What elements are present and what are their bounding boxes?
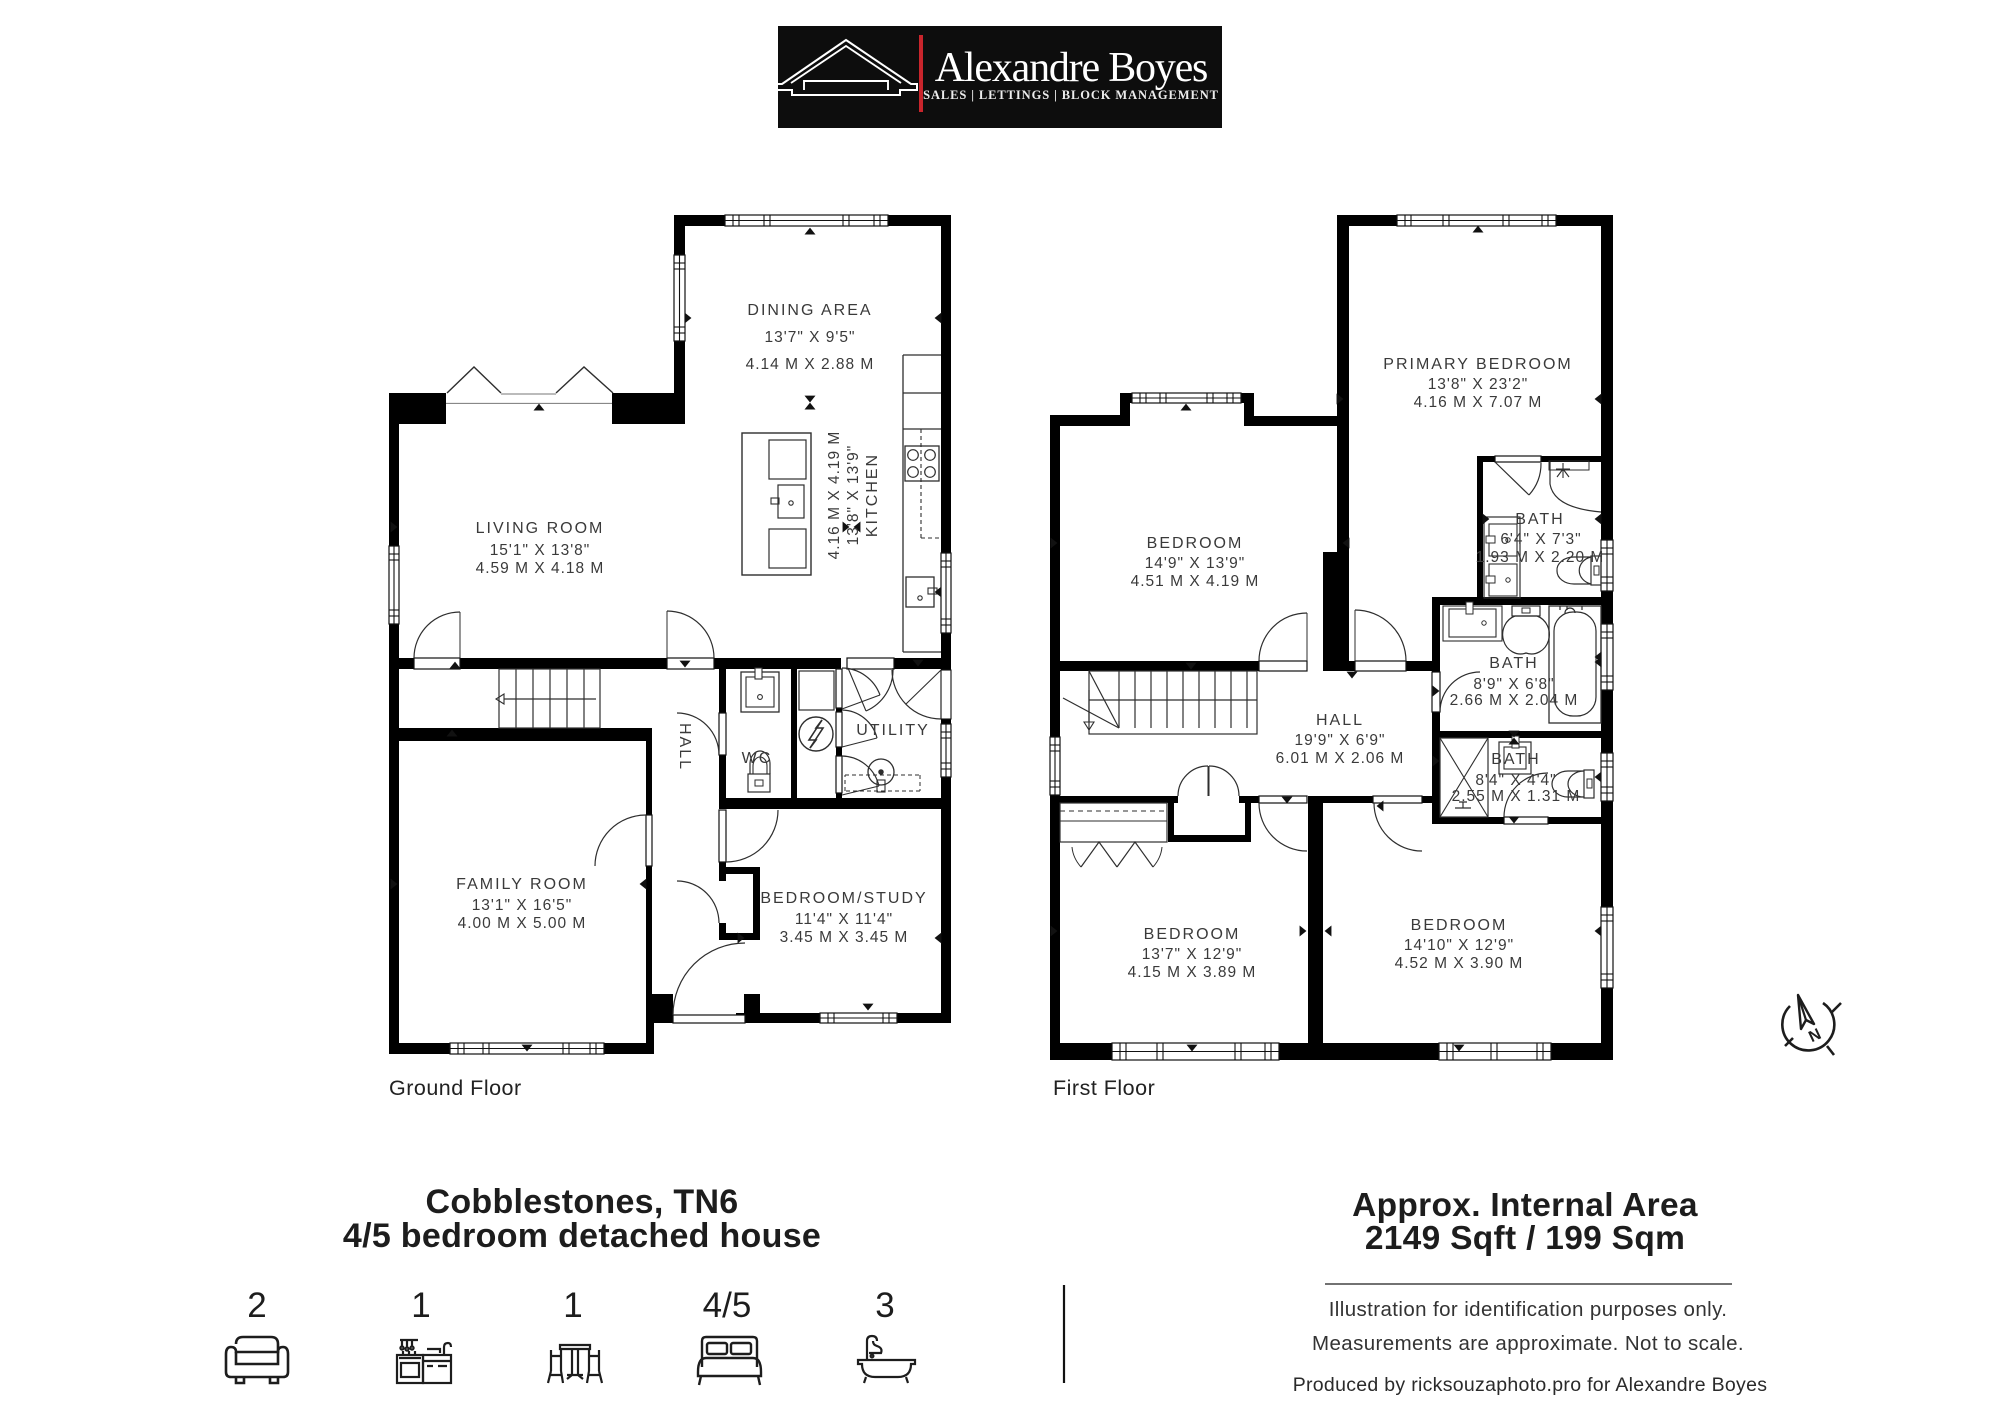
svg-text:8'9" X 6'8": 8'9" X 6'8" [1473, 676, 1554, 693]
svg-text:BEDROOM: BEDROOM [1144, 926, 1241, 943]
svg-text:1.93 M X 2.20 M: 1.93 M X 2.20 M [1476, 549, 1605, 566]
svg-text:First Floor: First Floor [1053, 1076, 1155, 1100]
svg-text:WC: WC [742, 750, 773, 767]
svg-text:3.45 M X 3.45 M: 3.45 M X 3.45 M [780, 929, 909, 946]
svg-text:19'9" X 6'9": 19'9" X 6'9" [1295, 732, 1386, 749]
svg-text:4.16 M X 4.19 M: 4.16 M X 4.19 M [826, 431, 843, 560]
svg-text:4.14 M X 2.88 M: 4.14 M X 2.88 M [746, 356, 875, 373]
svg-text:BEDROOM: BEDROOM [1147, 535, 1244, 552]
svg-text:2.55 M X 1.31 M: 2.55 M X 1.31 M [1452, 788, 1581, 805]
svg-text:13'1" X 16'5": 13'1" X 16'5" [472, 897, 573, 914]
svg-text:BATH: BATH [1489, 655, 1538, 672]
svg-text:6.01 M X 2.06 M: 6.01 M X 2.06 M [1276, 750, 1405, 767]
svg-text:PRIMARY BEDROOM: PRIMARY BEDROOM [1383, 356, 1572, 373]
svg-text:15'1" X 13'8": 15'1" X 13'8" [490, 542, 591, 559]
svg-text:Measurements are approximate.: Measurements are approximate. Not to sca… [1312, 1332, 1744, 1355]
svg-text:FAMILY ROOM: FAMILY ROOM [456, 876, 588, 893]
svg-text:HALL: HALL [676, 723, 693, 771]
svg-text:13'8" X 23'2": 13'8" X 23'2" [1428, 376, 1529, 393]
svg-text:14'10" X 12'9": 14'10" X 12'9" [1404, 937, 1514, 954]
svg-text:Cobblestones, TN6: Cobblestones, TN6 [425, 1183, 738, 1221]
svg-text:4/5: 4/5 [703, 1286, 752, 1325]
svg-text:13'8" X 13'9": 13'8" X 13'9" [845, 445, 862, 546]
svg-text:4/5 bedroom detached house: 4/5 bedroom detached house [343, 1217, 821, 1255]
svg-text:13'7" X 9'5": 13'7" X 9'5" [765, 329, 856, 346]
svg-text:4.00 M X 5.00 M: 4.00 M X 5.00 M [458, 915, 587, 932]
svg-text:BATH: BATH [1491, 751, 1540, 768]
svg-text:4.52 M X 3.90 M: 4.52 M X 3.90 M [1395, 955, 1524, 972]
svg-text:1: 1 [411, 1286, 430, 1325]
svg-text:11'4" X 11'4": 11'4" X 11'4" [795, 911, 893, 928]
svg-text:KITCHEN: KITCHEN [864, 453, 881, 537]
svg-text:Ground Floor: Ground Floor [389, 1076, 522, 1100]
svg-text:2149 Sqft / 199 Sqm: 2149 Sqft / 199 Sqm [1365, 1220, 1685, 1257]
svg-text:13'7" X 12'9": 13'7" X 12'9" [1142, 946, 1243, 963]
svg-text:4.15 M X 3.89 M: 4.15 M X 3.89 M [1128, 964, 1257, 981]
svg-text:4.51 M X 4.19 M: 4.51 M X 4.19 M [1131, 573, 1260, 590]
svg-text:HALL: HALL [1316, 712, 1364, 729]
svg-text:3: 3 [875, 1286, 894, 1325]
svg-text:4.59 M X 4.18 M: 4.59 M X 4.18 M [476, 560, 605, 577]
svg-text:Approx. Internal Area: Approx. Internal Area [1352, 1187, 1698, 1224]
svg-text:4.16 M X 7.07 M: 4.16 M X 7.07 M [1414, 394, 1543, 411]
svg-text:6'4" X 7'3": 6'4" X 7'3" [1500, 531, 1581, 548]
svg-text:BEDROOM: BEDROOM [1411, 917, 1508, 934]
svg-text:8'4" X 4'4": 8'4" X 4'4" [1475, 772, 1556, 789]
svg-text:Illustration for identificatio: Illustration for identification purposes… [1329, 1298, 1728, 1321]
svg-text:LIVING ROOM: LIVING ROOM [476, 520, 605, 537]
svg-text:2: 2 [247, 1286, 266, 1325]
svg-text:BATH: BATH [1515, 511, 1564, 528]
svg-text:2.66 M X 2.04 M: 2.66 M X 2.04 M [1450, 692, 1579, 709]
svg-text:Produced by ricksouzaphoto.pro: Produced by ricksouzaphoto.pro for Alexa… [1293, 1374, 1768, 1396]
svg-text:SALES | LETTINGS | BLOCK M: SALES | LETTINGS | BLOCK MANAGEMENT [923, 88, 1219, 102]
svg-text:14'9" X 13'9": 14'9" X 13'9" [1145, 555, 1246, 572]
svg-text:1: 1 [563, 1286, 582, 1325]
svg-text:BEDROOM/STUDY: BEDROOM/STUDY [760, 890, 927, 907]
svg-text:Alexandre Boyes: Alexandre Boyes [935, 45, 1207, 91]
svg-text:UTILITY: UTILITY [856, 722, 930, 739]
svg-text:DINING AREA: DINING AREA [747, 302, 872, 319]
